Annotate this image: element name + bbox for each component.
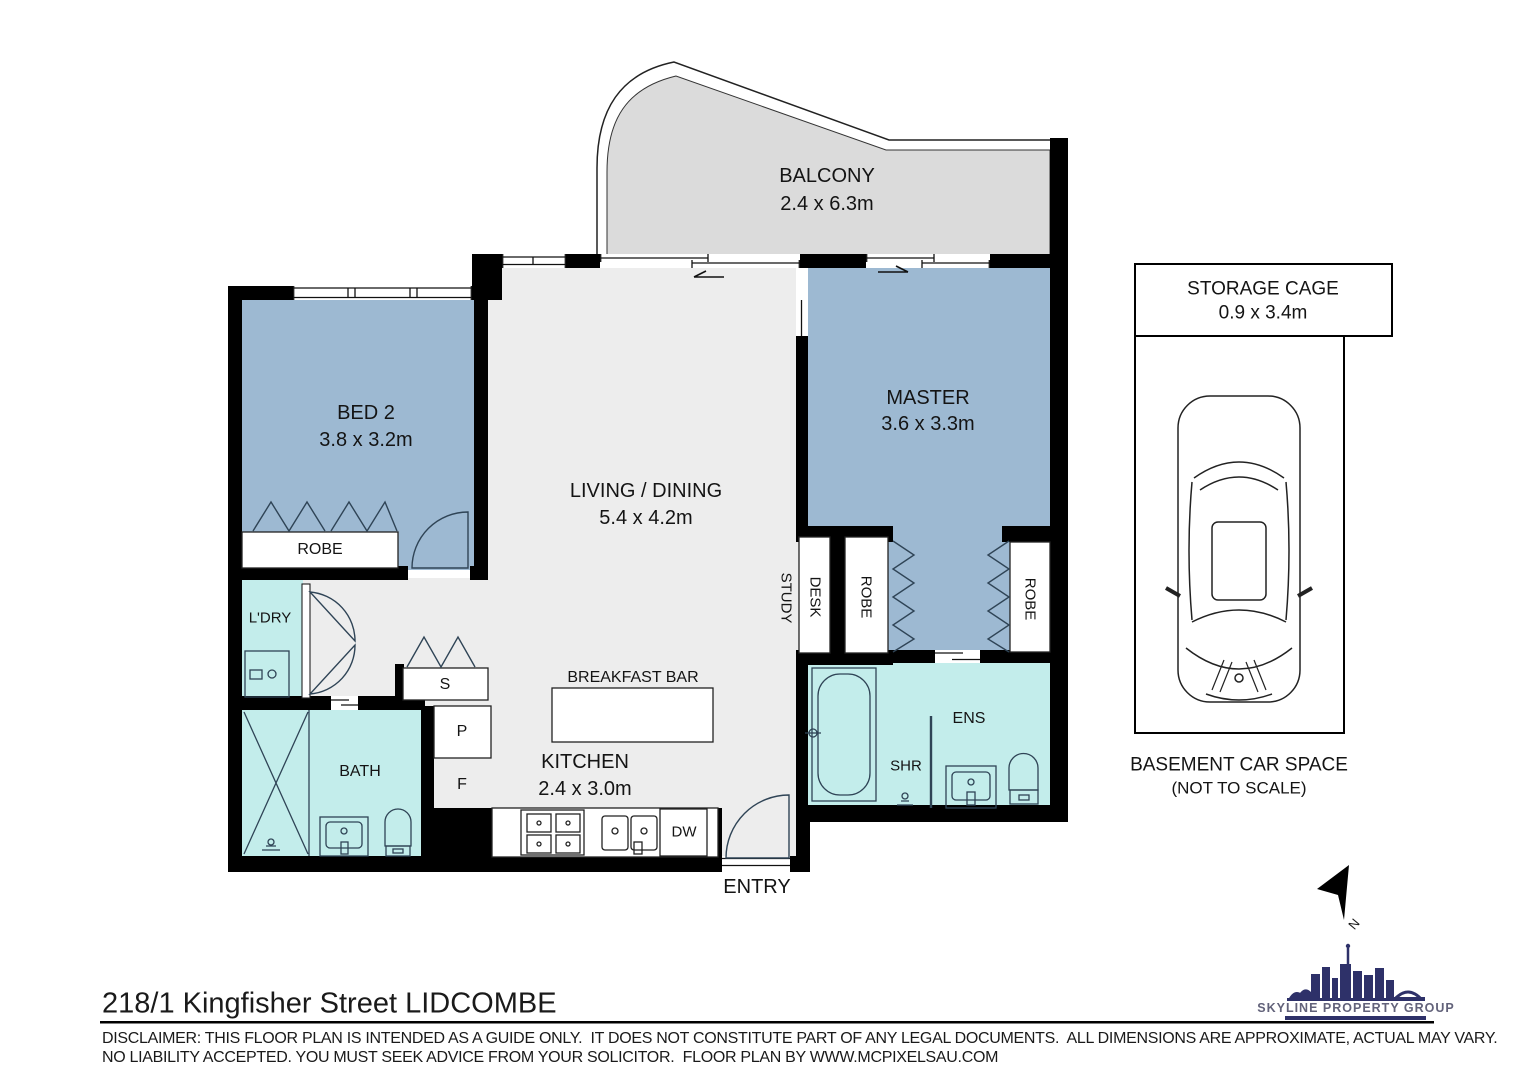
disclaimer-line-1: DISCLAIMER: THIS FLOOR PLAN IS INTENDED …	[102, 1030, 1497, 1048]
cupboard-s-label: S	[440, 677, 451, 693]
entry-label: ENTRY	[723, 877, 790, 897]
logo-wordmark: SKYLINE PROPERTY GROUP	[1257, 1001, 1455, 1015]
laundry-room	[242, 580, 303, 700]
storage-cage-box	[1135, 264, 1392, 336]
ensuite-room	[796, 663, 1050, 808]
floor-plan-drawing	[0, 0, 1528, 1080]
storage-cage-label: STORAGE CAGE	[1187, 280, 1339, 299]
bath-label: BATH	[339, 764, 380, 780]
disclaimer-line-2: NO LIABILITY ACCEPTED. YOU MUST SEEK ADV…	[102, 1049, 998, 1067]
car-space-subtitle: (NOT TO SCALE)	[1171, 780, 1306, 797]
breakfast-bar-box	[552, 688, 713, 742]
robe-right-label: ROBE	[1023, 578, 1038, 621]
car-space-title: BASEMENT CAR SPACE	[1130, 756, 1348, 775]
shower-label: SHR	[890, 759, 922, 774]
storage-cage-dims: 0.9 x 3.4m	[1219, 304, 1308, 323]
kitchen-label: KITCHEN	[541, 752, 629, 772]
living-label: LIVING / DINING	[570, 481, 722, 501]
bed2-label: BED 2	[337, 403, 395, 423]
ensuite-label: ENS	[953, 711, 986, 727]
fridge-label: F	[457, 777, 467, 793]
master-dims: 3.6 x 3.3m	[881, 414, 974, 434]
robe-bed2-label: ROBE	[297, 542, 342, 558]
breakfast-bar-label: BREAKFAST BAR	[567, 670, 698, 686]
laundry-door-leaf	[302, 584, 310, 698]
living-area	[488, 268, 808, 856]
desk-label: DESK	[808, 577, 823, 618]
pantry-label: P	[457, 724, 468, 740]
north-arrow-icon	[1317, 865, 1349, 920]
balcony-label: BALCONY	[779, 166, 875, 186]
floor-plan-page: BALCONY 2.4 x 6.3m BED 2 3.8 x 3.2m MAST…	[0, 0, 1528, 1080]
address-divider	[100, 1021, 1434, 1024]
study-label: STUDY	[779, 573, 794, 624]
bath-room	[242, 706, 421, 858]
robe-left-label: ROBE	[859, 576, 874, 619]
master-label: MASTER	[886, 388, 969, 408]
living-dims: 5.4 x 4.2m	[599, 508, 692, 528]
balcony-dims: 2.4 x 6.3m	[780, 194, 873, 214]
dishwasher-label: DW	[672, 825, 697, 840]
address: 218/1 Kingfisher Street LIDCOMBE	[102, 988, 557, 1021]
kitchen-dims: 2.4 x 3.0m	[538, 779, 631, 799]
storage-and-car	[1135, 264, 1392, 733]
laundry-label: L'DRY	[249, 611, 292, 626]
bed2-dims: 3.8 x 3.2m	[319, 430, 412, 450]
